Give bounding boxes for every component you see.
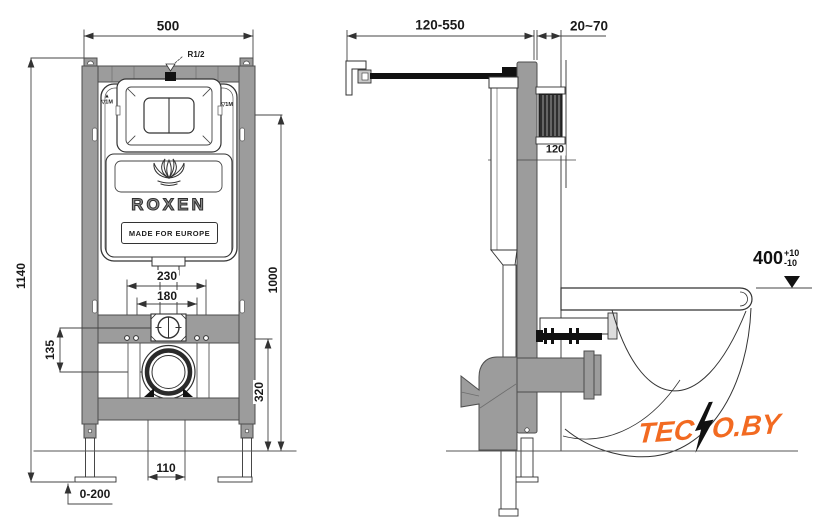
wall-niche-box bbox=[536, 87, 565, 144]
technical-drawing-canvas: 500 120-550 20~70 1140 1000 320 135 230 … bbox=[0, 0, 840, 525]
dim-1000-label: 1000 bbox=[267, 265, 279, 296]
level-mark-left: ▲ ▽1M bbox=[101, 94, 113, 107]
dim-180-label: 180 bbox=[155, 290, 179, 302]
drain-socket bbox=[142, 346, 195, 399]
flush-plate bbox=[116, 79, 222, 152]
cistern-tagline-box: MADE FOR EUROPE bbox=[121, 222, 218, 244]
inlet-thread-label: R1/2 bbox=[187, 51, 206, 59]
flush-buttons[interactable] bbox=[144, 98, 194, 133]
dim-120-550-label: 120-550 bbox=[413, 18, 467, 32]
frame-column-side bbox=[516, 62, 538, 482]
lightning-bolt-icon bbox=[691, 401, 716, 453]
drain-elbow-side bbox=[461, 357, 517, 450]
datum-triangle-icon bbox=[784, 276, 800, 288]
watermark-logo: TEC O.BY bbox=[636, 399, 782, 459]
dim-400-label: 400 +10 -10 bbox=[752, 249, 800, 269]
dim-1140-label: 1140 bbox=[15, 261, 27, 291]
front-view bbox=[31, 30, 296, 504]
dim-135-label: 135 bbox=[44, 338, 56, 362]
level-mark-right: ▽1M bbox=[221, 102, 233, 108]
cistern-brand-text: ROXEN bbox=[131, 195, 206, 215]
watermark-text-left: TEC bbox=[637, 414, 695, 450]
dim-400-tol-minus: -10 bbox=[784, 259, 799, 269]
dim-top-side-lines bbox=[347, 30, 606, 72]
level-mark-left-text: ▽1M bbox=[101, 100, 113, 106]
dim-20-70-label: 20~70 bbox=[568, 19, 610, 33]
datum-level-400 bbox=[756, 276, 812, 288]
dim-320-label: 320 bbox=[253, 380, 265, 404]
flush-bend-side bbox=[536, 313, 617, 344]
dim-120-label: 120 bbox=[544, 145, 566, 156]
dim-230-label: 230 bbox=[155, 270, 179, 282]
dim-500-label: 500 bbox=[155, 19, 182, 33]
frame-middle-rail bbox=[98, 314, 239, 343]
cistern-tagline-text: MADE FOR EUROPE bbox=[129, 229, 210, 238]
watermark-text-right: O.BY bbox=[711, 408, 782, 445]
dim-500-lines bbox=[84, 30, 253, 62]
dim-0-200-label: 0-200 bbox=[78, 488, 113, 500]
dim-400-value: 400 bbox=[753, 249, 783, 267]
waste-connector-side bbox=[512, 351, 601, 399]
dim-110-label: 110 bbox=[154, 462, 177, 474]
